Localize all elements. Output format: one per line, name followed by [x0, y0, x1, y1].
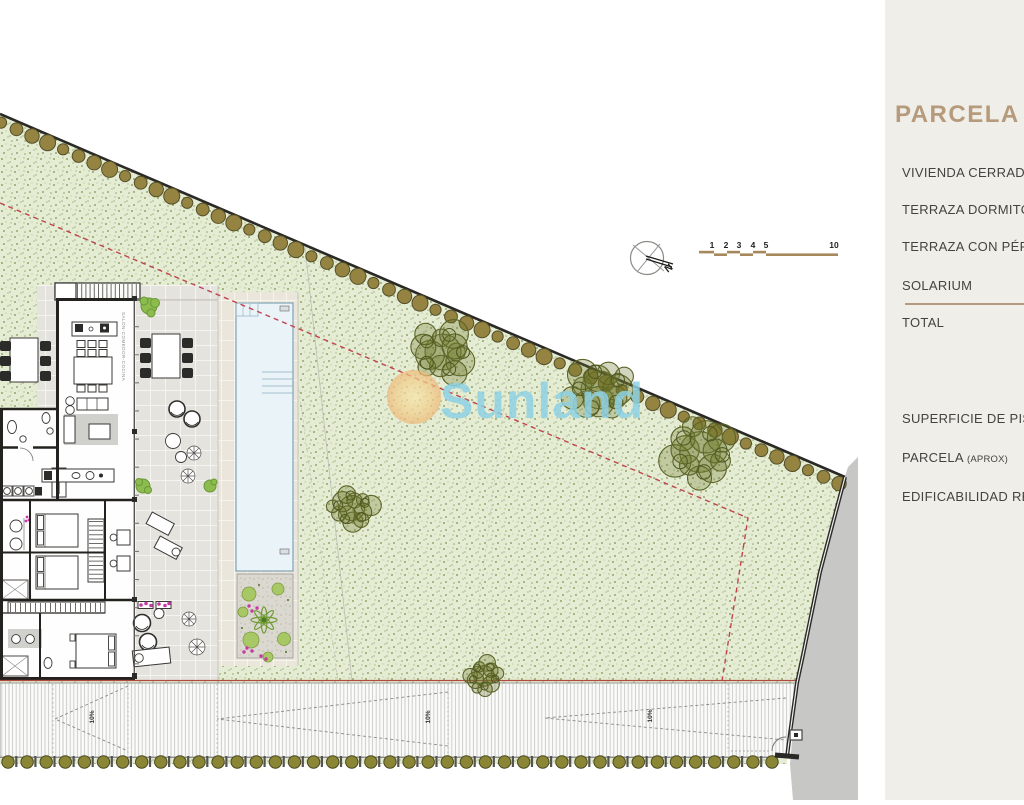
fence-post [111, 756, 113, 767]
fence-post [512, 756, 514, 767]
divider [905, 303, 1024, 305]
boundary-tree [211, 209, 225, 223]
fence-post [92, 756, 94, 767]
perimeter-bush [422, 756, 434, 768]
boundary-tree [321, 257, 334, 270]
total-row: TOTAL [902, 315, 944, 330]
fence-post [225, 756, 227, 767]
perimeter-bush [594, 756, 606, 768]
boundary-tree [755, 444, 768, 457]
garden-bed [237, 574, 293, 662]
boundary-tree [306, 251, 317, 262]
parcela-aprox-suffix: (APROX) [967, 454, 1008, 465]
parcela-aprox-label: PARCELA [902, 450, 963, 465]
perimeter-bush [441, 756, 453, 768]
perimeter-bush [346, 756, 358, 768]
perimeter-bush [365, 756, 377, 768]
boundary-tree [0, 117, 7, 128]
fence-post [607, 756, 609, 767]
boundary-tree [383, 283, 396, 296]
fence-post [569, 756, 571, 767]
driveway: 10% 10% 10% [0, 683, 797, 757]
fence-post [149, 756, 151, 767]
perimeter-bush [21, 756, 33, 768]
boundary-tree [507, 337, 520, 350]
watermark-text: Sunland [440, 373, 644, 429]
boundary-tree [258, 230, 271, 243]
parcela-row-terraza-dormitorio: TERRAZA DORMITO [902, 202, 1024, 217]
perimeter-bush [116, 756, 128, 768]
fence-post [474, 756, 476, 767]
boundary-tree [40, 135, 56, 151]
perimeter-bush [728, 756, 740, 768]
watermark: Sunland [387, 370, 644, 429]
fence-post [626, 756, 628, 767]
scale-tick: 10 [829, 240, 839, 250]
superficie-piscina-row: SUPERFICIE DE PIS [902, 411, 1024, 426]
house: SALÓN-COMEDOR-COCINA [0, 283, 298, 680]
perimeter-bush [250, 756, 262, 768]
perimeter-bush [78, 756, 90, 768]
perimeter-bush [518, 756, 530, 768]
room-label: SALÓN-COMEDOR-COCINA [121, 312, 127, 381]
shrub [204, 479, 217, 492]
edificabilidad-row: EDIFICABILIDAD RE [902, 489, 1024, 504]
boundary-tree [802, 465, 813, 476]
perimeter-bush [498, 756, 510, 768]
boundary-tree [102, 161, 118, 177]
boundary-tree [660, 402, 676, 418]
perimeter-bush [766, 756, 778, 768]
boundary-tree [87, 156, 101, 170]
fence-post [359, 756, 361, 767]
boundary-tree [273, 236, 287, 250]
perimeter-bush [40, 756, 52, 768]
boundary-tree [164, 188, 180, 204]
perimeter-bush [537, 756, 549, 768]
boundary-tree [397, 289, 411, 303]
parcela-aprox-row: PARCELA (APROX) [902, 450, 1008, 465]
perimeter-bush [193, 756, 205, 768]
fence-post [206, 756, 208, 767]
perimeter-bush [613, 756, 625, 768]
fence-post [187, 756, 189, 767]
scale-tick: 5 [764, 240, 769, 250]
perimeter-bush [403, 756, 415, 768]
fence-post [550, 756, 552, 767]
boundary-tree [474, 322, 490, 338]
perimeter-bush [97, 756, 109, 768]
fence-post [244, 756, 246, 767]
perimeter-bush [709, 756, 721, 768]
boundary-tree [58, 144, 69, 155]
perimeter-bush [651, 756, 663, 768]
scale-tick: 2 [724, 240, 729, 250]
perimeter-bush [174, 756, 186, 768]
fence-post [588, 756, 590, 767]
perimeter-bush [632, 756, 644, 768]
terrace-dining-set [140, 334, 193, 378]
fence-post [665, 756, 667, 767]
fence-post [684, 756, 686, 767]
boundary-tree [817, 471, 830, 484]
boundary-tree [149, 182, 163, 196]
boundary-tree [350, 268, 366, 284]
perimeter-bush [747, 756, 759, 768]
perimeter-bush [2, 756, 14, 768]
site-plan-canvas: 10% 10% 10% [0, 0, 885, 800]
perimeter-bush [288, 756, 300, 768]
parcela-row-terraza-pergola: TERRAZA CON PÉR [902, 239, 1024, 254]
fence-post [53, 756, 55, 767]
fence-post [168, 756, 170, 767]
fence-post [73, 756, 75, 767]
perimeter-bush [59, 756, 71, 768]
perimeter-bush [269, 756, 281, 768]
scale-bar: 1 2 3 4 5 10 [699, 240, 839, 256]
boundary-tree [226, 215, 242, 231]
perimeter-bush [479, 756, 491, 768]
perimeter-bush [670, 756, 682, 768]
boundary-tree [10, 123, 23, 136]
parcela-row-vivienda: VIVIENDA CERRAD [902, 165, 1024, 180]
boundary-tree [25, 129, 39, 143]
boundary-tree [120, 171, 131, 182]
fence-post [703, 756, 705, 767]
fence-post [741, 756, 743, 767]
scale-tick: 1 [710, 240, 715, 250]
fence-post [302, 756, 304, 767]
fence-post [455, 756, 457, 767]
site-plan: 10% 10% 10% [0, 0, 885, 800]
fence-post [15, 756, 17, 767]
sidebar-title: PARCELA [895, 101, 1020, 129]
boundary-tree [196, 203, 209, 216]
sidebar: PARCELA VIVIENDA CERRAD TERRAZA DORMITO … [885, 0, 1024, 800]
perimeter-bush [575, 756, 587, 768]
fence-post [340, 756, 342, 767]
boundary-tree [134, 176, 147, 189]
perimeter-bush [460, 756, 472, 768]
fence-post [264, 756, 266, 767]
boundary-tree [368, 277, 379, 288]
boundary-tree [430, 304, 441, 315]
boundary-tree [182, 197, 193, 208]
fence-post [321, 756, 323, 767]
slope-label: 10% [647, 709, 654, 722]
fence-post [435, 756, 437, 767]
fence-post [722, 756, 724, 767]
boundary-tree [536, 349, 552, 365]
fence-post [34, 756, 36, 767]
boundary-tree [554, 358, 565, 369]
fence-post [397, 756, 399, 767]
perimeter-bush [212, 756, 224, 768]
fence-post [760, 756, 762, 767]
perimeter-bush [136, 756, 148, 768]
perimeter-bush [327, 756, 339, 768]
parcela-row-solarium: SOLARIUM [902, 278, 972, 293]
perimeter-bush [689, 756, 701, 768]
boundary-tree [770, 450, 784, 464]
fence-post [283, 756, 285, 767]
perimeter-bush-row [2, 756, 778, 768]
pergola [55, 283, 140, 300]
north-arrow: N [631, 242, 676, 276]
fence-post [416, 756, 418, 767]
boundary-tree [521, 343, 535, 357]
perimeter-bush [307, 756, 319, 768]
boundary-tree [412, 295, 428, 311]
perimeter-bush [155, 756, 167, 768]
perimeter-bush [556, 756, 568, 768]
perimeter-bush [384, 756, 396, 768]
north-label: N [663, 262, 675, 275]
scale-tick: 3 [737, 240, 742, 250]
scale-tick: 4 [751, 240, 756, 250]
fence-post [378, 756, 380, 767]
fence-post [646, 756, 648, 767]
pool-basin [236, 303, 293, 571]
boundary-tree [335, 263, 349, 277]
slope-label: 10% [89, 710, 96, 723]
fence-post [130, 756, 132, 767]
boundary-tree [740, 438, 751, 449]
slope-label: 10% [425, 710, 432, 723]
fence-post [493, 756, 495, 767]
garden-dining-set [0, 338, 51, 382]
boundary-tree [492, 331, 503, 342]
boundary-tree [646, 396, 660, 410]
sun-icon [387, 370, 441, 424]
boundary-tree [784, 456, 800, 472]
perimeter-bush [231, 756, 243, 768]
fence-post [531, 756, 533, 767]
boundary-tree [244, 224, 255, 235]
swimming-pool [236, 303, 293, 571]
boundary-tree [288, 242, 304, 258]
boundary-tree [72, 150, 85, 163]
